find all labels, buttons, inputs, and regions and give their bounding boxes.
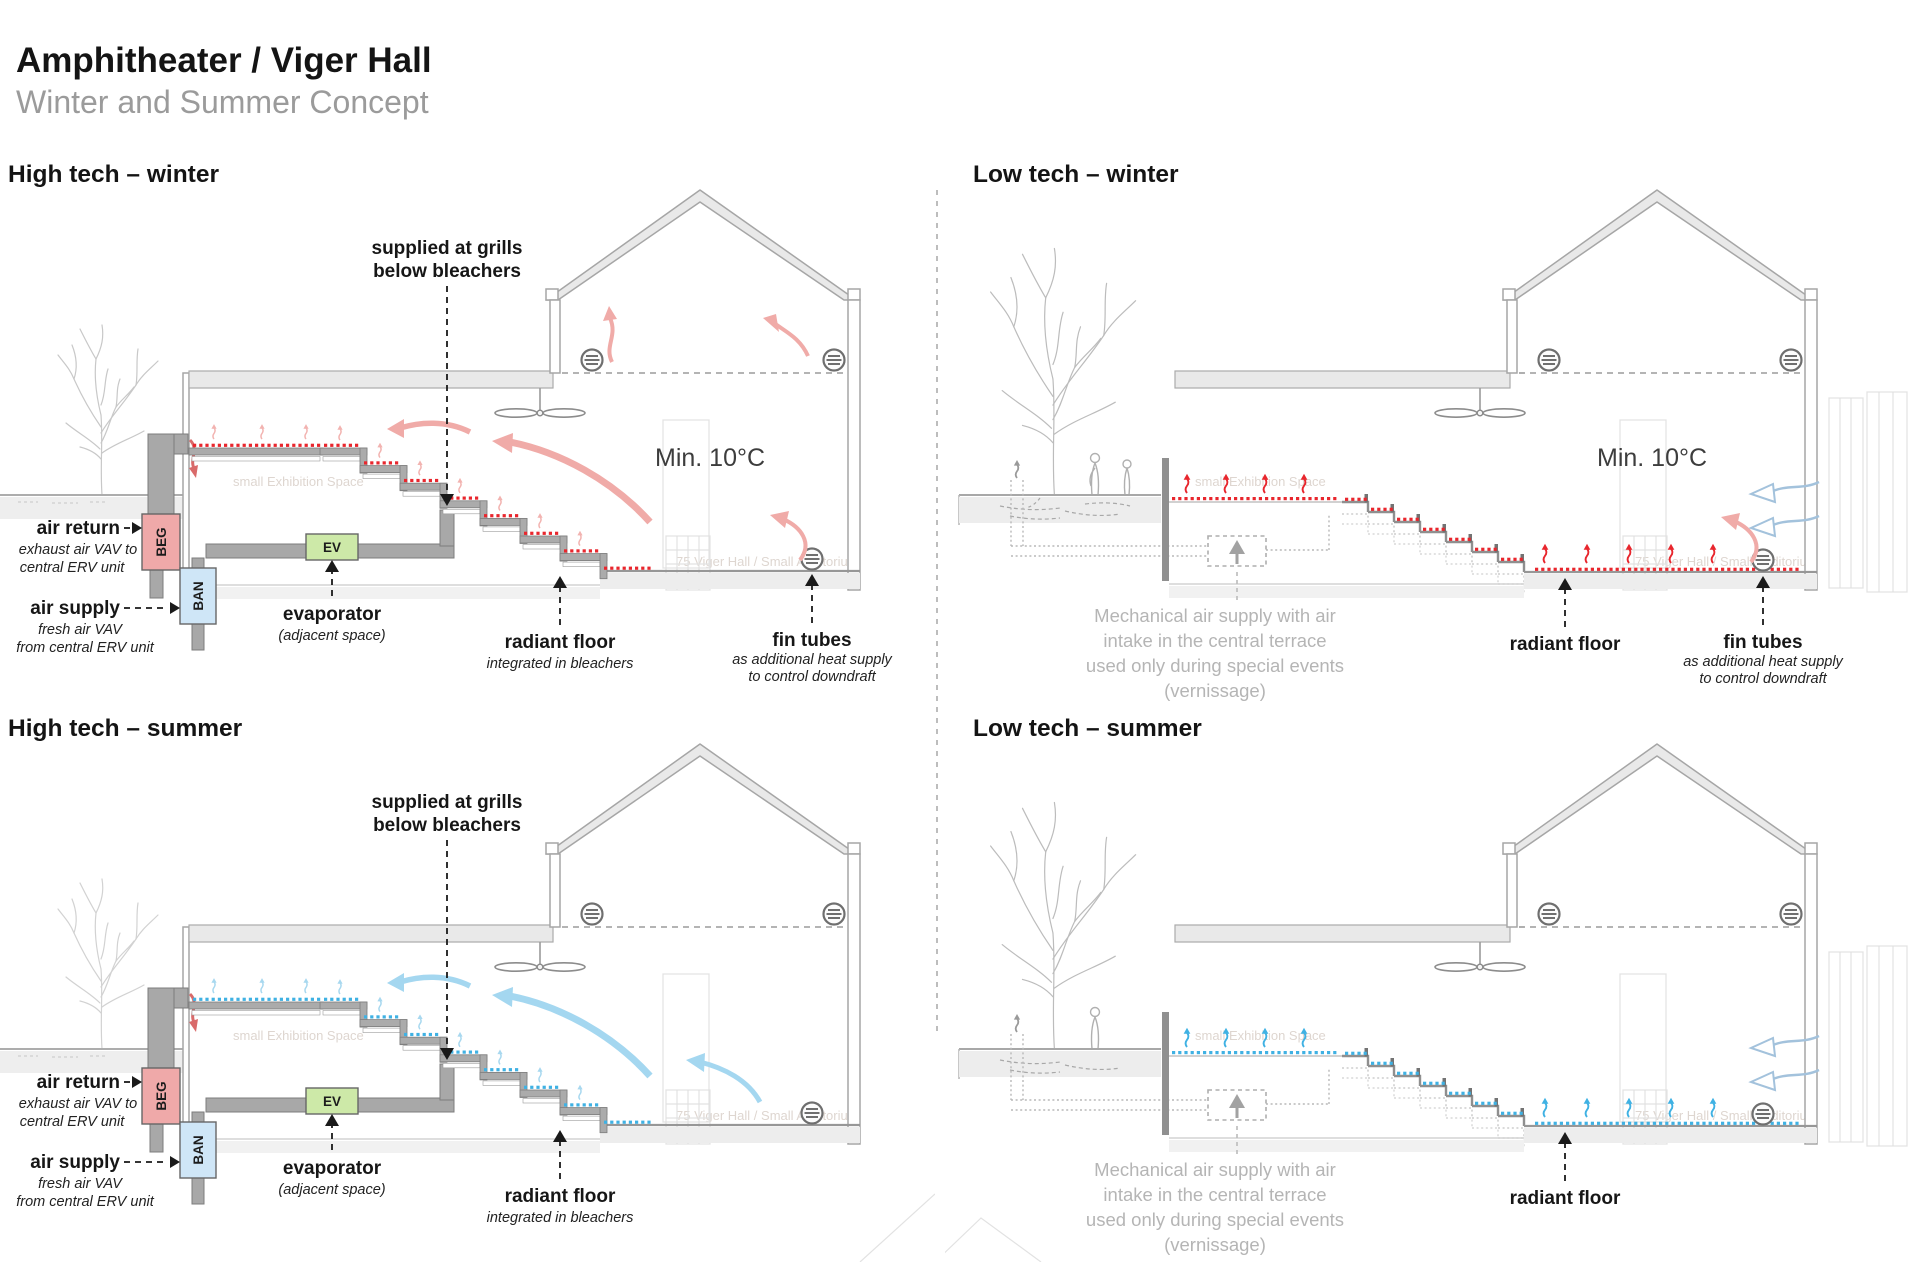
label-supplied-1: supplied at grills	[372, 238, 523, 259]
fin-tube-icon	[1539, 350, 1560, 371]
svg-text:air return: air return	[37, 1072, 120, 1093]
intake-squiggle	[1014, 1014, 1020, 1032]
top-platform	[189, 1002, 323, 1015]
svg-text:(vernissage): (vernissage)	[1164, 1234, 1266, 1255]
quadrant-heading: High tech – winter	[8, 161, 219, 188]
hall-roof-slab	[1175, 371, 1510, 388]
svg-text:EV: EV	[323, 1094, 341, 1109]
radiant-dots-terrace	[1172, 497, 1336, 500]
ceiling-fan-icon	[1435, 388, 1525, 417]
radiant-dots	[193, 444, 320, 447]
page-header: Amphitheater / Viger Hall Winter and Sum…	[16, 40, 432, 122]
label-fin-tubes: fin tubes	[772, 630, 851, 651]
svg-text:air supply: air supply	[30, 1152, 120, 1173]
hall-roof-slab	[1175, 925, 1510, 942]
svg-text:radiant floor: radiant floor	[505, 1186, 616, 1207]
svg-text:integrated in bleachers: integrated in bleachers	[487, 656, 634, 672]
label-radiant-floor: radiant floor	[505, 632, 616, 653]
svg-text:evaporator: evaporator	[283, 1158, 382, 1179]
low-tech-summer-diagram: Low tech – summer small Exhibition Space…	[945, 702, 1920, 1262]
label-air-supply: air supply	[30, 598, 120, 619]
label-evaporator: evaporator	[283, 604, 382, 625]
hall-left-wall	[183, 927, 189, 1135]
svg-text:used only during special event: used only during special events	[1086, 1209, 1344, 1230]
faint-door	[663, 420, 709, 568]
house-section	[546, 190, 860, 590]
radiant-dots-floor	[604, 1121, 651, 1124]
svg-text:intake in the central terrace: intake in the central terrace	[1103, 630, 1326, 651]
svg-text:as additional heat supply: as additional heat supply	[732, 652, 892, 668]
fin-tube-icon	[1781, 350, 1802, 371]
faint-gable	[860, 1194, 935, 1262]
quadrant-low-tech-summer: Low tech – summer small Exhibition Space…	[945, 702, 1920, 1262]
fin-tube-icon	[582, 904, 603, 925]
faint-neighbor-building	[1829, 392, 1907, 592]
svg-text:intake in the central terrace: intake in the central terrace	[1103, 1184, 1326, 1205]
min-temp-label: Min. 10°C	[655, 444, 765, 472]
low-tech-winter-diagram: Low tech – winter small Exhibition Space…	[945, 148, 1920, 708]
quadrant-heading: Low tech – winter	[973, 161, 1179, 188]
ban-label: BAN	[191, 581, 206, 610]
faint-gable	[945, 1218, 1041, 1262]
label-fin-tubes: fin tubes	[1723, 632, 1802, 653]
svg-text:fresh air VAV: fresh air VAV	[38, 1176, 123, 1192]
svg-text:central ERV unit: central ERV unit	[20, 560, 125, 576]
svg-text:used only during special event: used only during special events	[1086, 655, 1344, 676]
label-mechanical-note: Mechanical air supply with air intake in…	[1086, 605, 1344, 701]
bg-text-exhibition: small Exhibition Space	[233, 474, 364, 489]
ev-label: EV	[323, 540, 341, 555]
svg-text:to control downdraft: to control downdraft	[1699, 671, 1827, 687]
tree-sketch	[58, 325, 158, 495]
label-supplied-2: below bleachers	[373, 261, 521, 282]
quadrant-heading: Low tech – summer	[973, 715, 1202, 742]
faint-neighbor-building	[1829, 946, 1907, 1146]
high-tech-summer-diagram: High tech – summer small Exhibition Spac…	[0, 702, 935, 1262]
svg-text:(adjacent space): (adjacent space)	[278, 628, 385, 644]
ceiling-fan-icon	[495, 942, 585, 971]
svg-text:from central ERV unit: from central ERV unit	[16, 1194, 155, 1210]
radiant-dots	[193, 998, 320, 1001]
people-figures	[1090, 454, 1131, 496]
page-subtitle: Winter and Summer Concept	[16, 82, 432, 122]
bleachers	[1342, 1048, 1524, 1148]
svg-text:BEG: BEG	[154, 1081, 169, 1110]
svg-text:supplied at grills: supplied at grills	[372, 792, 523, 813]
fin-tube-icon	[1781, 904, 1802, 925]
svg-text:75 Viger Hall / Small Auditori: 75 Viger Hall / Small Auditorium	[676, 1108, 859, 1123]
high-tech-winter-diagram: High tech – winter small Exhibition Spac…	[0, 148, 935, 708]
svg-text:from central ERV unit: from central ERV unit	[16, 640, 155, 656]
beg-label: BEG	[154, 527, 169, 556]
top-platform	[189, 448, 323, 461]
hall-roof-slab	[189, 371, 553, 388]
fin-tube-icon	[824, 350, 845, 371]
label-radiant-floor: radiant floor	[1510, 1188, 1621, 1209]
svg-text:below bleachers: below bleachers	[373, 815, 521, 836]
floor-structure	[1169, 1126, 1817, 1152]
fin-tube-icon	[582, 350, 603, 371]
ceiling-fan-icon	[495, 388, 585, 417]
radiant-dots-terrace	[1172, 1051, 1336, 1054]
svg-text:(vernissage): (vernissage)	[1164, 680, 1266, 701]
quadrant-heading: High tech – summer	[8, 715, 243, 742]
svg-text:75 Viger Hall / Small Auditori: 75 Viger Hall / Small Auditorium	[1635, 554, 1818, 569]
fin-tube-icon	[1753, 1104, 1774, 1125]
quadrant-high-tech-winter: High tech – winter small Exhibition Spac…	[0, 148, 935, 708]
fin-tube-icon	[1539, 904, 1560, 925]
fin-tube-icon	[802, 1103, 823, 1124]
svg-text:central ERV unit: central ERV unit	[20, 1114, 125, 1130]
radiant-dots-floor	[604, 567, 651, 570]
svg-text:Mechanical air supply with air: Mechanical air supply with air	[1094, 605, 1336, 626]
house-section	[546, 744, 860, 1144]
svg-text:small Exhibition Space: small Exhibition Space	[233, 1028, 364, 1043]
bleachers	[1342, 494, 1524, 594]
svg-text:fresh air VAV: fresh air VAV	[38, 622, 123, 638]
svg-text:exhaust air VAV to: exhaust air VAV to	[19, 1096, 138, 1112]
warm-air-squiggles	[211, 424, 308, 439]
svg-text:exhaust air VAV to: exhaust air VAV to	[19, 542, 138, 558]
svg-text:to control downdraft: to control downdraft	[748, 669, 876, 685]
page-title: Amphitheater / Viger Hall	[16, 40, 432, 82]
fin-tube-icon	[824, 904, 845, 925]
people-figures	[1091, 1008, 1100, 1050]
hall-left-wall	[1162, 1012, 1169, 1135]
svg-text:Mechanical air supply with air: Mechanical air supply with air	[1094, 1159, 1336, 1180]
bg-text-auditorium: 75 Viger Hall / Small Auditorium	[676, 554, 859, 569]
tree-sketch	[991, 803, 1136, 1050]
label-mechanical-note: Mechanical air supply with air intake in…	[1086, 1159, 1344, 1255]
ceiling-fan-icon	[1435, 942, 1525, 971]
floor-structure	[1169, 572, 1817, 598]
quadrant-divider-line	[936, 190, 938, 1035]
label-air-return: air return	[37, 518, 120, 539]
cool-air-squiggles	[211, 978, 308, 993]
terrace-ground	[959, 1049, 1161, 1079]
floor-structure	[183, 571, 860, 599]
tree-sketch	[58, 879, 158, 1049]
tree-sketch	[991, 249, 1136, 496]
hall-left-wall	[1162, 458, 1169, 581]
hall-roof-slab	[189, 925, 553, 942]
svg-text:as additional heat supply: as additional heat supply	[1683, 654, 1843, 670]
terrace-ground	[959, 495, 1161, 525]
intake-squiggle	[1014, 460, 1020, 478]
quadrant-high-tech-summer: High tech – summer small Exhibition Spac…	[0, 702, 935, 1262]
quadrant-low-tech-winter: Low tech – winter small Exhibition Space…	[945, 148, 1920, 708]
floor-structure	[183, 1125, 860, 1153]
label-radiant-floor: radiant floor	[1510, 634, 1621, 655]
hall-left-wall	[183, 373, 189, 581]
svg-text:75 Viger Hall / Small Auditori: 75 Viger Hall / Small Auditorium	[1635, 1108, 1818, 1123]
svg-text:(adjacent space): (adjacent space)	[278, 1182, 385, 1198]
min-temp-label: Min. 10°C	[1597, 444, 1707, 472]
svg-text:BAN: BAN	[191, 1135, 206, 1164]
svg-text:integrated in bleachers: integrated in bleachers	[487, 1210, 634, 1226]
